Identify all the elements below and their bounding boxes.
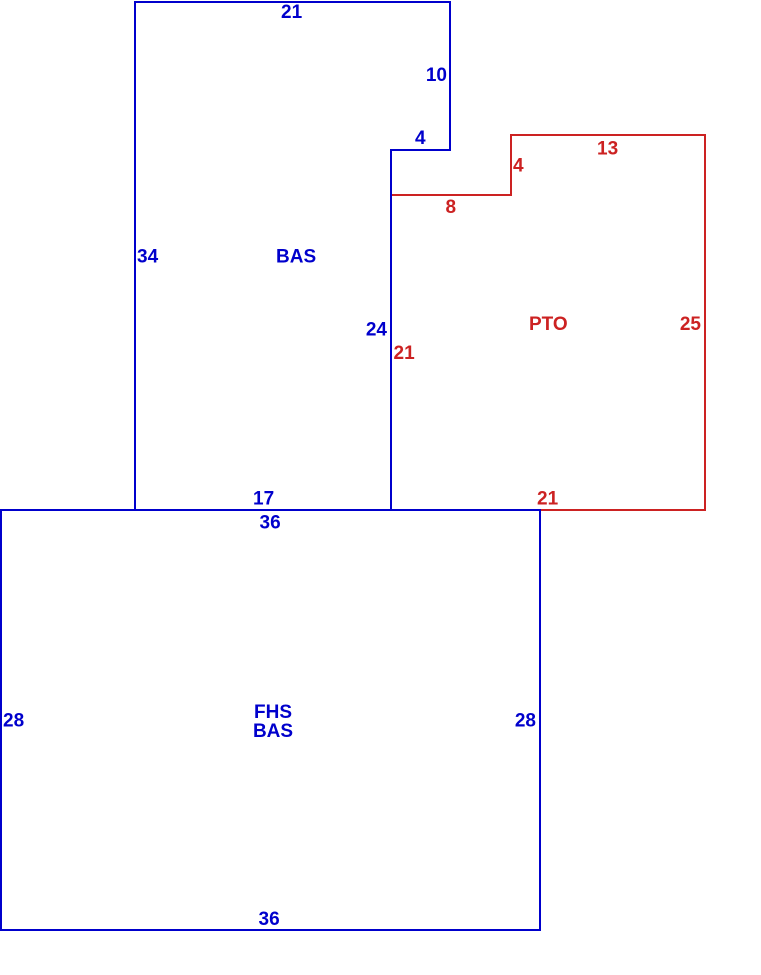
svg-text:21: 21: [394, 343, 416, 364]
svg-text:28: 28: [515, 711, 536, 732]
svg-text:PTO: PTO: [529, 314, 568, 335]
svg-text:4: 4: [513, 156, 524, 177]
svg-text:13: 13: [597, 139, 618, 160]
svg-text:17: 17: [253, 489, 274, 510]
svg-text:4: 4: [415, 128, 426, 149]
svg-text:36: 36: [260, 513, 281, 534]
svg-text:21: 21: [537, 489, 559, 510]
svg-text:21: 21: [281, 2, 303, 23]
svg-text:28: 28: [3, 711, 24, 732]
svg-text:BAS: BAS: [253, 721, 293, 742]
svg-text:24: 24: [366, 320, 388, 341]
svg-text:10: 10: [426, 65, 447, 86]
svg-text:34: 34: [137, 247, 159, 268]
svg-text:25: 25: [680, 314, 702, 335]
svg-text:36: 36: [259, 909, 280, 930]
svg-text:FHS: FHS: [254, 702, 292, 723]
svg-text:BAS: BAS: [276, 247, 316, 268]
svg-text:8: 8: [446, 197, 457, 218]
